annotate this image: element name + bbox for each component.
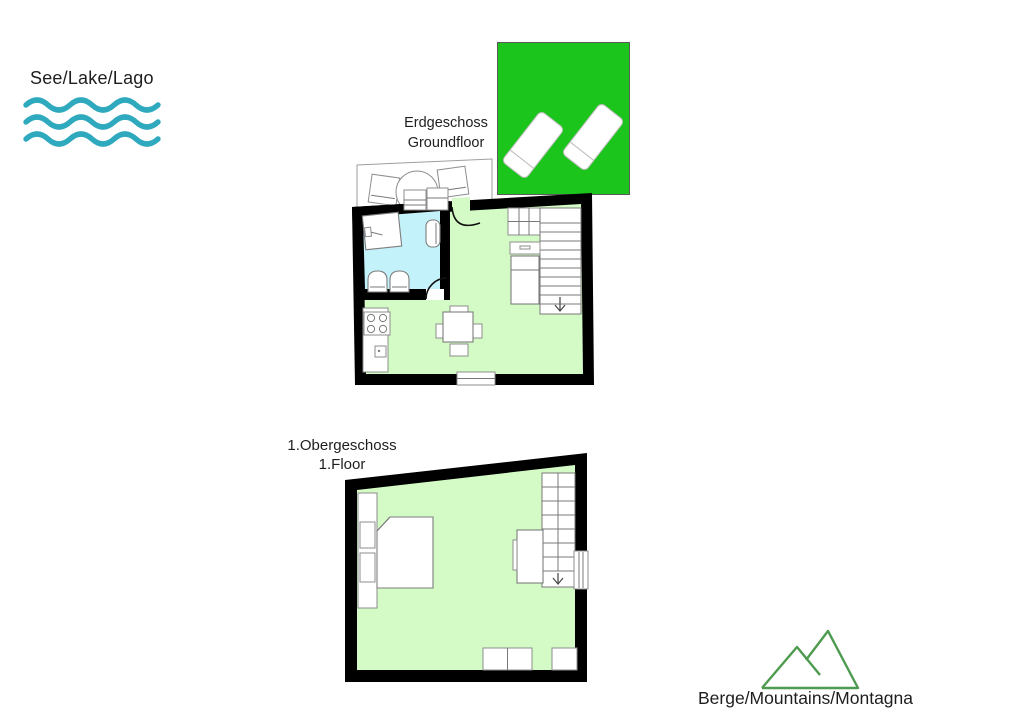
toilet — [368, 271, 387, 292]
cabinet — [483, 648, 532, 670]
terrace-chair-left — [368, 174, 400, 206]
cabinet — [552, 648, 577, 670]
sink — [426, 220, 440, 247]
waves-icon — [22, 96, 162, 148]
dining-table — [443, 312, 473, 342]
ground-floor-window — [457, 372, 495, 385]
sofa-bed — [511, 256, 539, 304]
wave-line — [26, 117, 158, 127]
bidet — [390, 271, 409, 292]
dining-chair — [473, 324, 482, 338]
wave-line — [26, 100, 158, 110]
dining-chair — [450, 344, 468, 356]
pillow — [360, 522, 375, 548]
wave-line — [26, 134, 158, 144]
mountains-label: Berge/Mountains/Montagna — [698, 688, 913, 709]
lake-label: See/Lake/Lago — [30, 68, 154, 89]
mountain-right-peak — [762, 631, 858, 688]
staircase — [540, 208, 581, 314]
ground-floor-label: Erdgeschoss Groundfloor — [378, 113, 514, 153]
drawer-cabinet — [510, 242, 540, 254]
bed-duvet — [377, 517, 433, 588]
floorplan-page: See/Lake/Lago Erdgeschoss Groundfloor — [0, 0, 1024, 724]
staircase — [542, 473, 575, 587]
mountains-icon — [755, 624, 865, 696]
desk — [513, 530, 543, 583]
shower — [362, 212, 401, 250]
kitchen-sink — [375, 346, 386, 357]
first-floor-window — [574, 551, 588, 589]
first-floor-plan — [330, 430, 600, 690]
wardrobe — [508, 208, 540, 235]
kitchen — [363, 308, 390, 372]
ground-floor-plan — [338, 150, 600, 390]
terrace-window — [404, 188, 448, 210]
pillow — [360, 553, 375, 582]
stove — [364, 312, 390, 335]
bed-headboard — [358, 493, 377, 608]
ground-floor-title-de: Erdgeschoss — [378, 113, 514, 133]
